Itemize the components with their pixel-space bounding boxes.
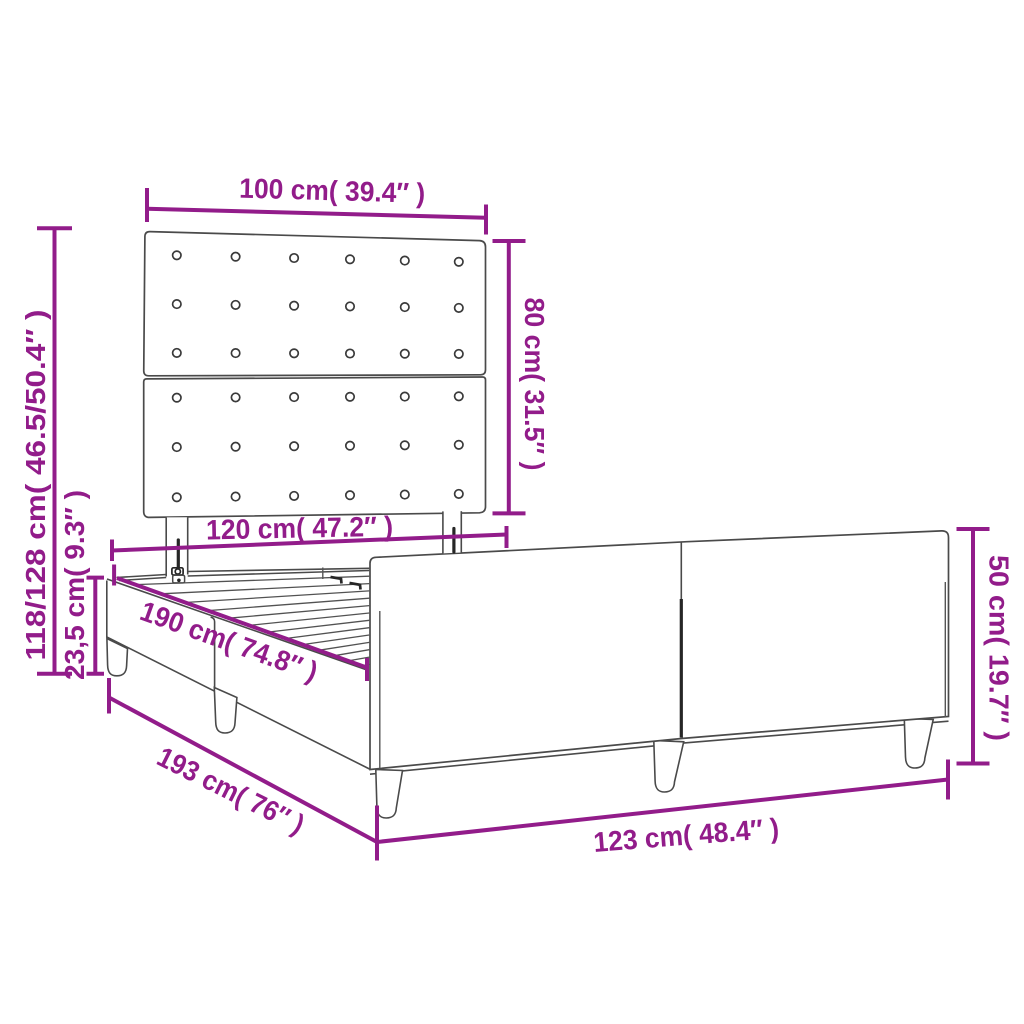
- svg-text:23,5 cm( 9.3″ ): 23,5 cm( 9.3″ ): [59, 490, 90, 680]
- svg-text:118/128 cm( 46.5/50.4″ ): 118/128 cm( 46.5/50.4″ ): [20, 310, 51, 661]
- svg-text:123 cm( 48.4″ ): 123 cm( 48.4″ ): [592, 812, 780, 857]
- svg-text:50 cm( 19.7″ ): 50 cm( 19.7″ ): [984, 555, 1015, 741]
- svg-text:193 cm( 76″ ): 193 cm( 76″ ): [152, 741, 309, 840]
- svg-text:100 cm( 39.4″ ): 100 cm( 39.4″ ): [239, 173, 426, 209]
- svg-text:80 cm( 31.5″ ): 80 cm( 31.5″ ): [519, 298, 550, 471]
- svg-text:120 cm( 47.2″ ): 120 cm( 47.2″ ): [206, 511, 394, 546]
